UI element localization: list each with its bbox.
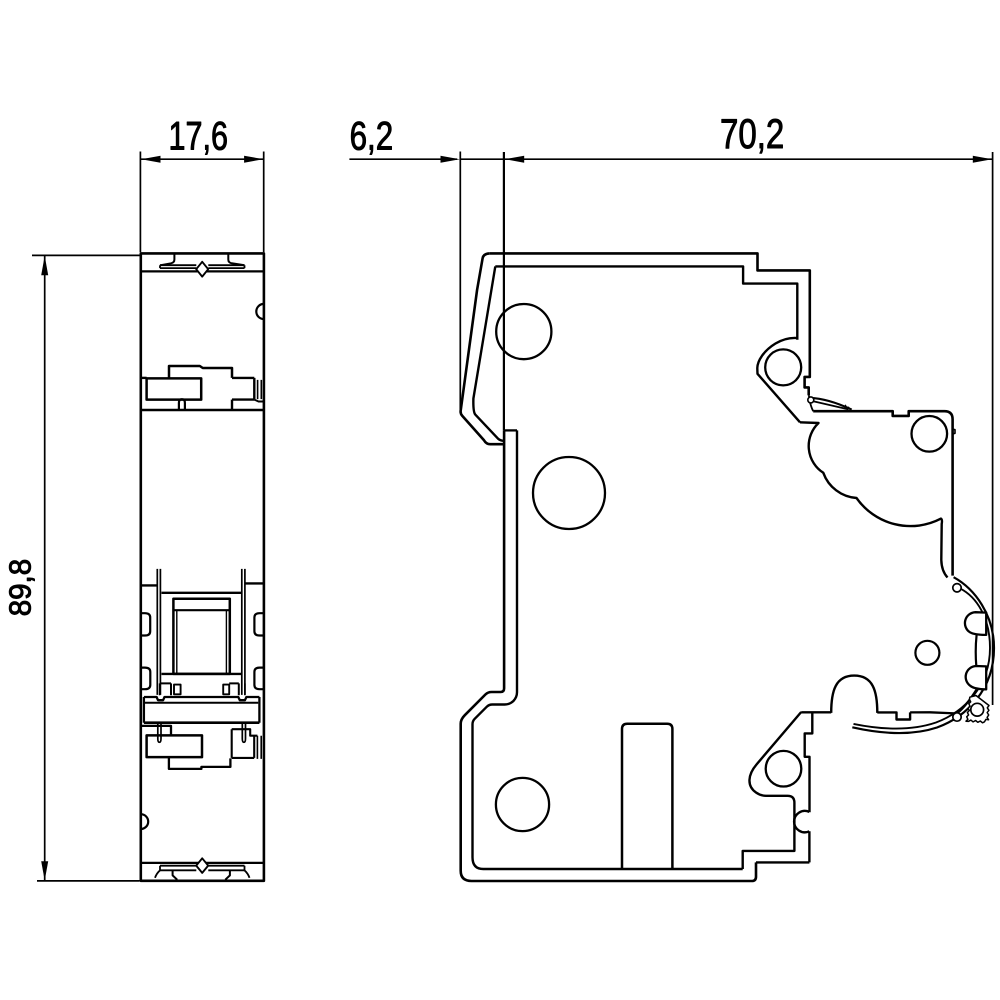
svg-text:89,8: 89,8 [3, 559, 38, 617]
svg-text:6,2: 6,2 [350, 115, 394, 159]
svg-text:70,2: 70,2 [720, 110, 784, 157]
svg-text:17,6: 17,6 [169, 115, 229, 159]
